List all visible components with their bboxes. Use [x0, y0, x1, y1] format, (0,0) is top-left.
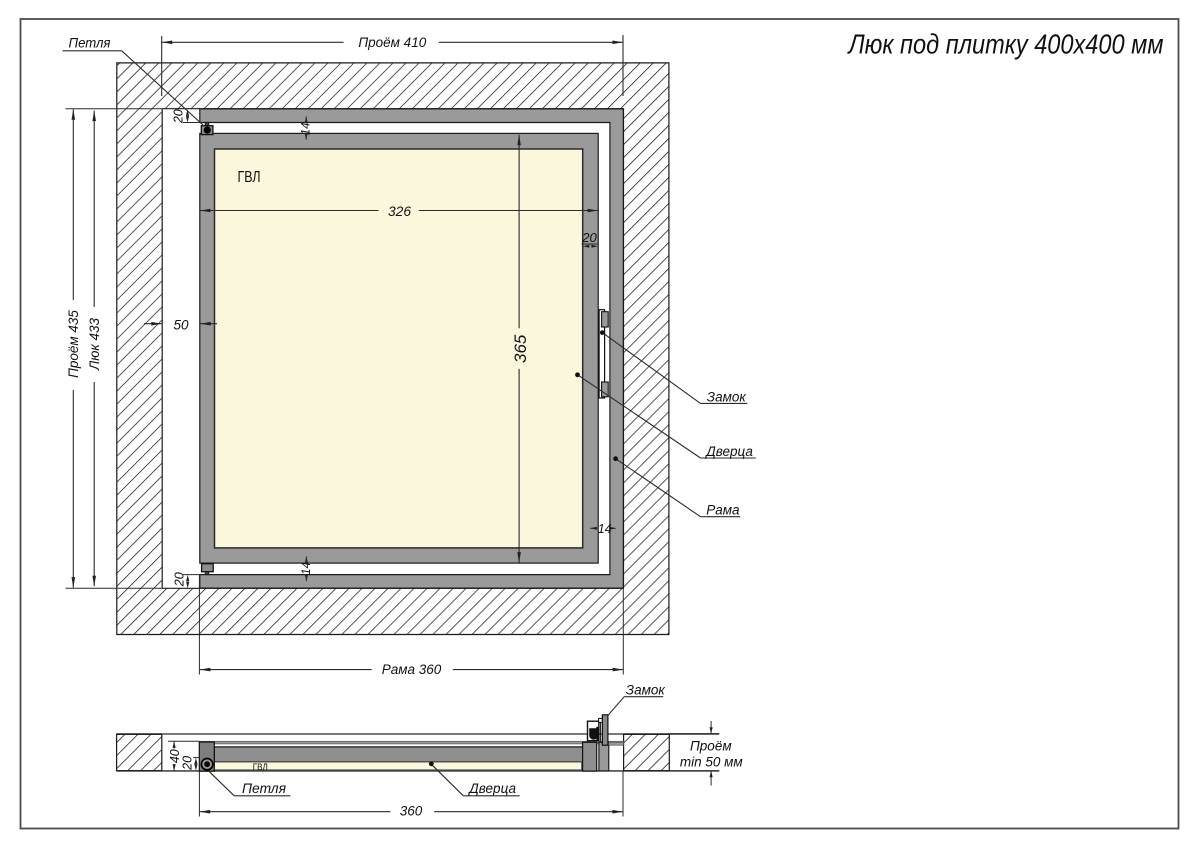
svg-text:Дверца: Дверца — [467, 781, 516, 796]
svg-text:360: 360 — [400, 804, 423, 819]
svg-text:ГВЛ: ГВЛ — [238, 169, 261, 186]
svg-text:min 50 мм: min 50 мм — [680, 755, 743, 770]
svg-text:20: 20 — [180, 756, 194, 771]
svg-text:14: 14 — [301, 123, 313, 136]
svg-text:20: 20 — [172, 572, 186, 587]
svg-text:Петля: Петля — [69, 36, 111, 51]
svg-text:14: 14 — [301, 562, 313, 575]
svg-text:Рама 360: Рама 360 — [382, 662, 442, 677]
svg-text:Проём: Проём — [690, 738, 732, 753]
svg-text:Люк под плитку 400x400 мм: Люк под плитку 400x400 мм — [847, 29, 1164, 60]
svg-text:Рама: Рама — [706, 503, 740, 518]
svg-text:326: 326 — [388, 204, 411, 219]
svg-text:20: 20 — [581, 230, 597, 245]
svg-text:Замок: Замок — [707, 389, 747, 404]
svg-text:14: 14 — [598, 522, 612, 536]
svg-text:50: 50 — [173, 318, 189, 333]
svg-text:Замок: Замок — [626, 683, 666, 698]
svg-text:Проём 435: Проём 435 — [66, 310, 81, 378]
svg-text:Петля: Петля — [242, 781, 286, 796]
svg-text:365: 365 — [511, 334, 530, 363]
svg-text:Проём 410: Проём 410 — [358, 35, 426, 50]
svg-text:ГВЛ: ГВЛ — [253, 762, 268, 772]
svg-text:Дверца: Дверца — [704, 444, 753, 459]
svg-text:Люк 433: Люк 433 — [87, 317, 102, 371]
svg-text:20: 20 — [172, 109, 186, 124]
